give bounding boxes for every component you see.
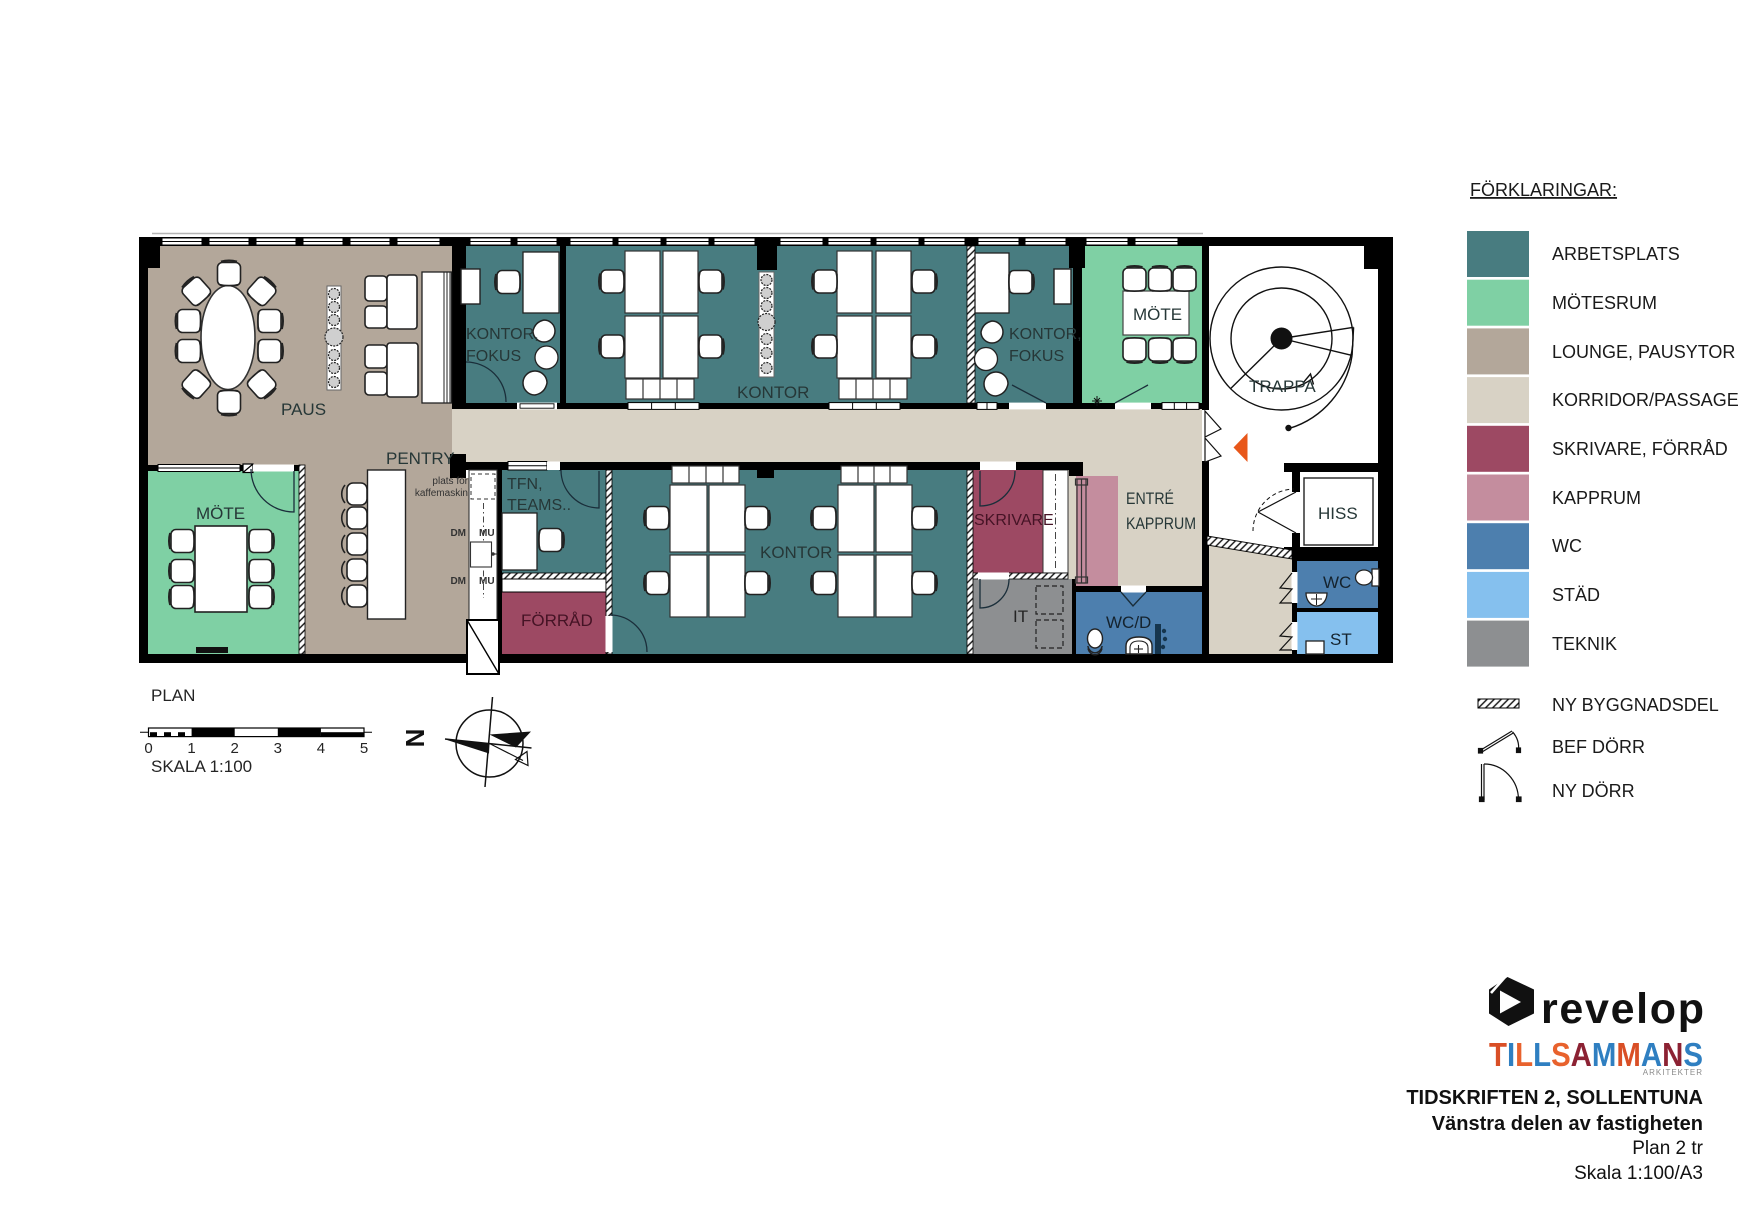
svg-text:WC: WC — [1323, 573, 1351, 592]
svg-text:MU: MU — [479, 576, 495, 587]
svg-text:MÖTESRUM: MÖTESRUM — [1552, 293, 1657, 313]
svg-text:SKALA 1:100: SKALA 1:100 — [151, 757, 252, 776]
svg-text:WC: WC — [1552, 536, 1582, 556]
svg-text:N: N — [400, 729, 430, 748]
svg-text:ENTRÉ: ENTRÉ — [1126, 489, 1174, 508]
svg-text:KAPPRUM: KAPPRUM — [1126, 514, 1196, 533]
svg-text:TEAMS..: TEAMS.. — [507, 497, 571, 514]
svg-text:MÖTE: MÖTE — [196, 504, 245, 523]
svg-text:1: 1 — [187, 740, 195, 757]
svg-text:TIDSKRIFTEN 2, SOLLENTUNA: TIDSKRIFTEN 2, SOLLENTUNA — [1406, 1087, 1703, 1109]
svg-text:DM: DM — [450, 528, 466, 539]
svg-text:KORRIDOR/PASSAGE: KORRIDOR/PASSAGE — [1552, 390, 1739, 410]
svg-text:kaffemaskin: kaffemaskin — [415, 488, 468, 499]
svg-text:TFN,: TFN, — [507, 476, 543, 493]
svg-text:KONTOR: KONTOR — [737, 383, 809, 402]
svg-text:NY BYGGNADSDEL: NY BYGGNADSDEL — [1552, 695, 1719, 715]
svg-text:WC/D: WC/D — [1106, 613, 1151, 632]
svg-text:PLAN: PLAN — [151, 686, 195, 705]
svg-text:SKRIVARE: SKRIVARE — [974, 512, 1054, 529]
svg-text:Plan 2 tr: Plan 2 tr — [1632, 1138, 1703, 1159]
svg-text:5: 5 — [360, 740, 368, 757]
svg-text:FOKUS: FOKUS — [466, 348, 521, 365]
svg-text:0: 0 — [144, 740, 152, 757]
svg-text:4: 4 — [317, 740, 325, 757]
svg-text:KONTOR,: KONTOR, — [1009, 326, 1082, 343]
svg-text:Vänstra delen av fastigheten: Vänstra delen av fastigheten — [1432, 1113, 1703, 1135]
svg-text:PAUS: PAUS — [281, 400, 326, 419]
svg-text:Skala 1:100/A3: Skala 1:100/A3 — [1574, 1163, 1703, 1184]
svg-text:ST: ST — [1330, 630, 1352, 649]
svg-text:3: 3 — [274, 740, 282, 757]
svg-text:FOKUS: FOKUS — [1009, 348, 1064, 365]
svg-text:DM: DM — [450, 576, 466, 587]
svg-text:ARKITEKTER: ARKITEKTER — [1643, 1068, 1703, 1077]
svg-text:FÖRRÅD: FÖRRÅD — [521, 611, 593, 630]
svg-text:KONTOR: KONTOR — [760, 543, 832, 562]
svg-text:IT: IT — [1013, 607, 1028, 626]
svg-text:KONTOR,: KONTOR, — [466, 326, 539, 343]
svg-text:KAPPRUM: KAPPRUM — [1552, 488, 1641, 508]
svg-text:MU: MU — [479, 528, 495, 539]
svg-text:ARBETSPLATS: ARBETSPLATS — [1552, 244, 1680, 264]
svg-text:NY DÖRR: NY DÖRR — [1552, 781, 1635, 801]
svg-text:LOUNGE, PAUSYTOR: LOUNGE, PAUSYTOR — [1552, 342, 1735, 362]
svg-text:STÄD: STÄD — [1552, 585, 1600, 605]
svg-text:FÖRKLARINGAR:: FÖRKLARINGAR: — [1470, 180, 1617, 200]
svg-text:PENTRY: PENTRY — [386, 449, 455, 468]
svg-text:2: 2 — [231, 740, 239, 757]
svg-text:TRAPPA: TRAPPA — [1249, 377, 1316, 396]
svg-text:MÖTE: MÖTE — [1133, 305, 1182, 324]
svg-text:SKRIVARE, FÖRRÅD: SKRIVARE, FÖRRÅD — [1552, 439, 1728, 459]
svg-text:plats för: plats för — [432, 476, 468, 487]
svg-text:HISS: HISS — [1318, 504, 1358, 523]
svg-text:TEKNIK: TEKNIK — [1552, 634, 1617, 654]
svg-text:BEF DÖRR: BEF DÖRR — [1552, 737, 1645, 757]
svg-text:revelop: revelop — [1541, 985, 1703, 1033]
